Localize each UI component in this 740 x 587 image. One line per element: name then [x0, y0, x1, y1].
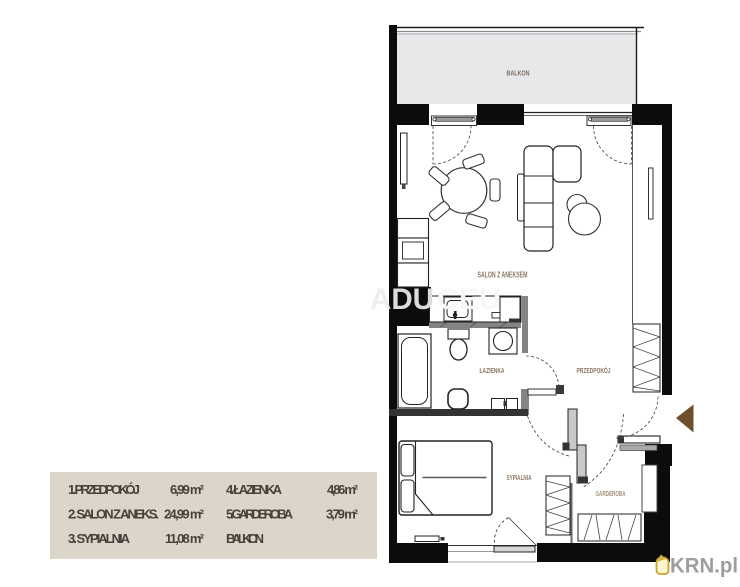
svg-text:ŁAZIENKA: ŁAZIENKA — [480, 368, 505, 375]
svg-text:24,99 m²: 24,99 m² — [164, 507, 205, 522]
svg-text:5. GARDEROBA: 5. GARDEROBA — [226, 507, 294, 522]
svg-text:1. PRZEDPOKÓJ: 1. PRZEDPOKÓJ — [68, 482, 140, 497]
svg-text:4. ŁAZIENKA: 4. ŁAZIENKA — [226, 482, 283, 497]
svg-text:CEU: CEU — [437, 283, 501, 316]
svg-text:3. SYPIALNIA: 3. SYPIALNIA — [68, 531, 131, 546]
svg-text:BALKON: BALKON — [507, 69, 530, 78]
svg-text:SYPIALNIA: SYPIALNIA — [507, 475, 532, 482]
svg-text:GARDEROBA: GARDEROBA — [596, 491, 626, 498]
svg-text:11,08 m²: 11,08 m² — [165, 531, 205, 546]
svg-text:3,79 m²: 3,79 m² — [326, 507, 359, 522]
svg-text:SALON Z ANEKSEM: SALON Z ANEKSEM — [478, 271, 528, 280]
svg-text:6,99 m²: 6,99 m² — [170, 482, 205, 497]
svg-text:4,86 m²: 4,86 m² — [327, 482, 359, 497]
svg-text:PRZEDPOKÓJ: PRZEDPOKÓJ — [577, 366, 611, 375]
svg-text:KRN.pl: KRN.pl — [670, 555, 738, 578]
svg-text:BALKON: BALKON — [226, 531, 264, 546]
svg-text:2. SALON Z ANEKS.: 2. SALON Z ANEKS. — [68, 507, 159, 522]
